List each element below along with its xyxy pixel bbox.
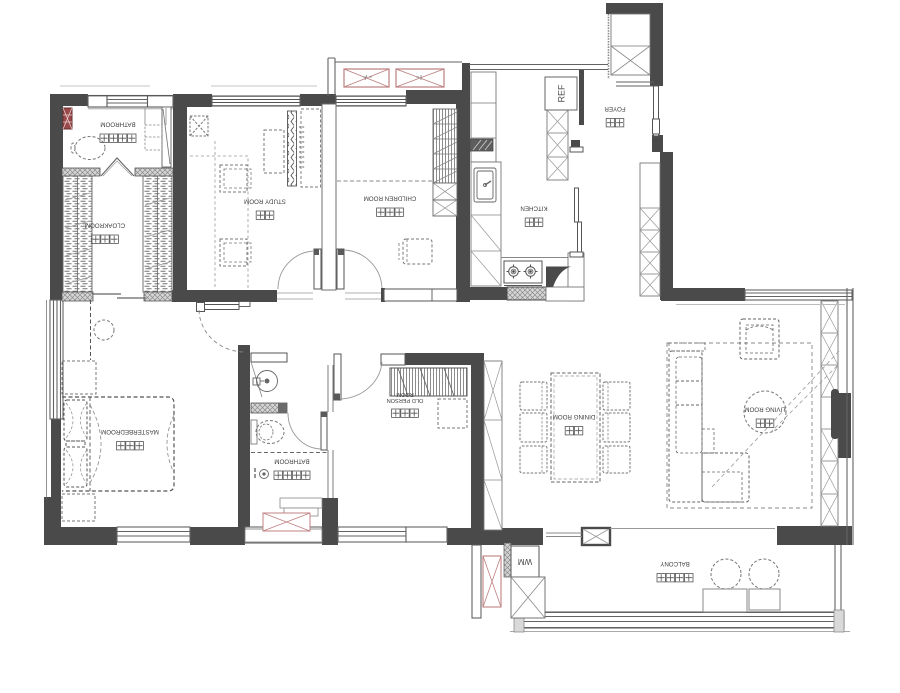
svg-text:DINING ROOM: DINING ROOM [553,413,596,420]
svg-text:ROOM: ROOM [396,391,414,397]
svg-text:KITCHEN: KITCHEN [520,205,547,212]
svg-text:LIVING ROOM: LIVING ROOM [744,406,785,413]
svg-text:CHILDREN ROOM: CHILDREN ROOM [364,195,417,202]
svg-text:BALCONY: BALCONY [660,560,690,567]
svg-text:WM: WM [518,557,533,566]
svg-text:REF: REF [557,84,567,103]
svg-text:BATHROOM: BATHROOM [274,458,309,465]
svg-text:FOYER: FOYER [604,105,626,112]
svg-text:MASTERBEDROOM: MASTERBEDROOM [101,428,159,435]
svg-text:BATHROOM: BATHROOM [100,121,135,128]
svg-text:CLOAKROOM: CLOAKROOM [85,222,125,229]
svg-text:STUDY ROOM: STUDY ROOM [244,198,286,205]
